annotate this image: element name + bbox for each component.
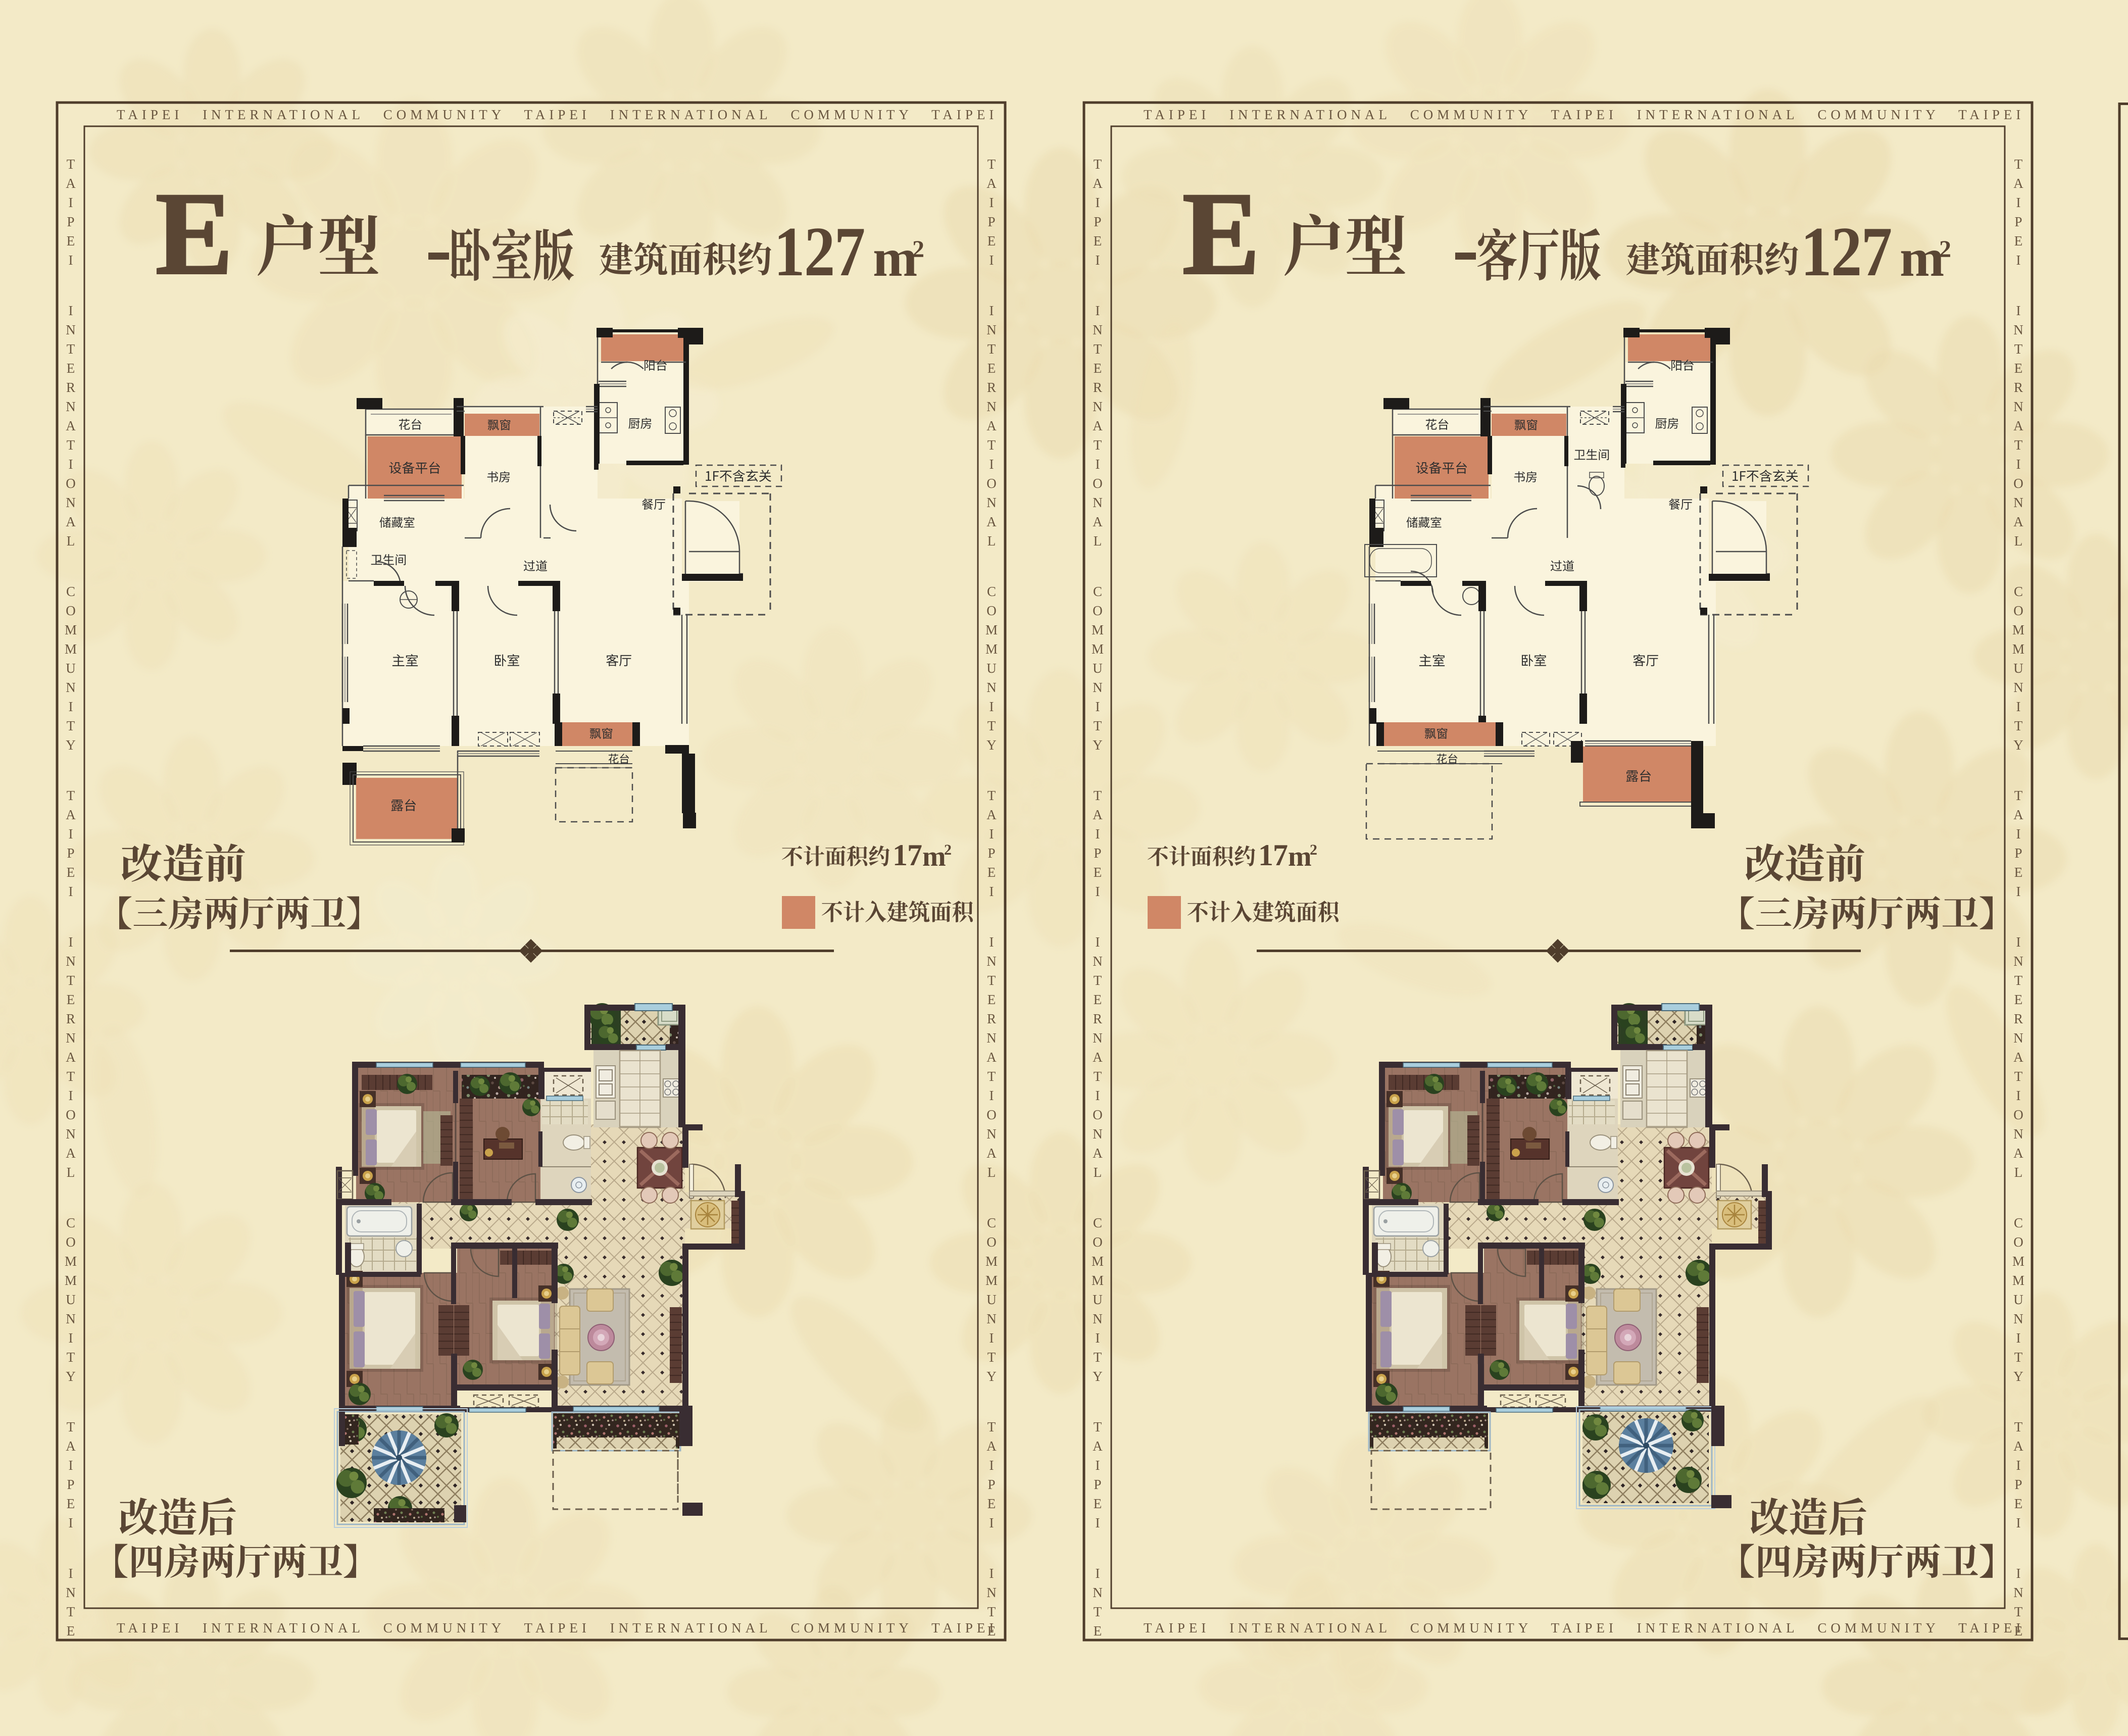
svg-text:m: m [873, 228, 917, 287]
svg-text:TAIPEI INTERNATIONAL COMMUNITY: TAIPEI INTERNATIONAL COMMUNITY TAIPEI IN… [63, 157, 78, 1736]
svg-text:TAIPEI INTERNATIONAL COMMUNITY: TAIPEI INTERNATIONAL COMMUNITY TAIPEI IN… [117, 1620, 998, 1635]
svg-text:2: 2 [1939, 236, 1951, 263]
svg-text:TAIPEI INTERNATIONAL COMMUNITY: TAIPEI INTERNATIONAL COMMUNITY TAIPEI IN… [117, 107, 998, 122]
svg-text:TAIPEI INTERNATIONAL COMMUNITY: TAIPEI INTERNATIONAL COMMUNITY TAIPEI IN… [1090, 157, 1105, 1736]
svg-text:2: 2 [912, 236, 924, 263]
svg-text:127: 127 [774, 212, 865, 291]
svg-text:m: m [1900, 228, 1944, 287]
svg-text:TAIPEI INTERNATIONAL COMMUNITY: TAIPEI INTERNATIONAL COMMUNITY TAIPEI IN… [984, 157, 999, 1736]
svg-text:2: 2 [944, 841, 952, 858]
svg-text:2: 2 [1310, 841, 1317, 858]
svg-text:17: 17 [1258, 838, 1288, 872]
svg-text:17: 17 [893, 838, 922, 872]
svg-text:TAIPEI INTERNATIONAL COMMUNITY: TAIPEI INTERNATIONAL COMMUNITY TAIPEI IN… [1144, 107, 2024, 122]
svg-text:E: E [1182, 169, 1260, 300]
svg-text:E: E [156, 169, 233, 300]
svg-text:TAIPEI INTERNATIONAL COMMUNITY: TAIPEI INTERNATIONAL COMMUNITY TAIPEI IN… [1144, 1620, 2024, 1635]
svg-text:TAIPEI INTERNATIONAL COMMUNITY: TAIPEI INTERNATIONAL COMMUNITY TAIPEI IN… [2011, 157, 2026, 1736]
svg-text:m: m [1288, 841, 1312, 872]
svg-text:m: m [922, 841, 946, 872]
svg-text:127: 127 [1801, 212, 1892, 291]
